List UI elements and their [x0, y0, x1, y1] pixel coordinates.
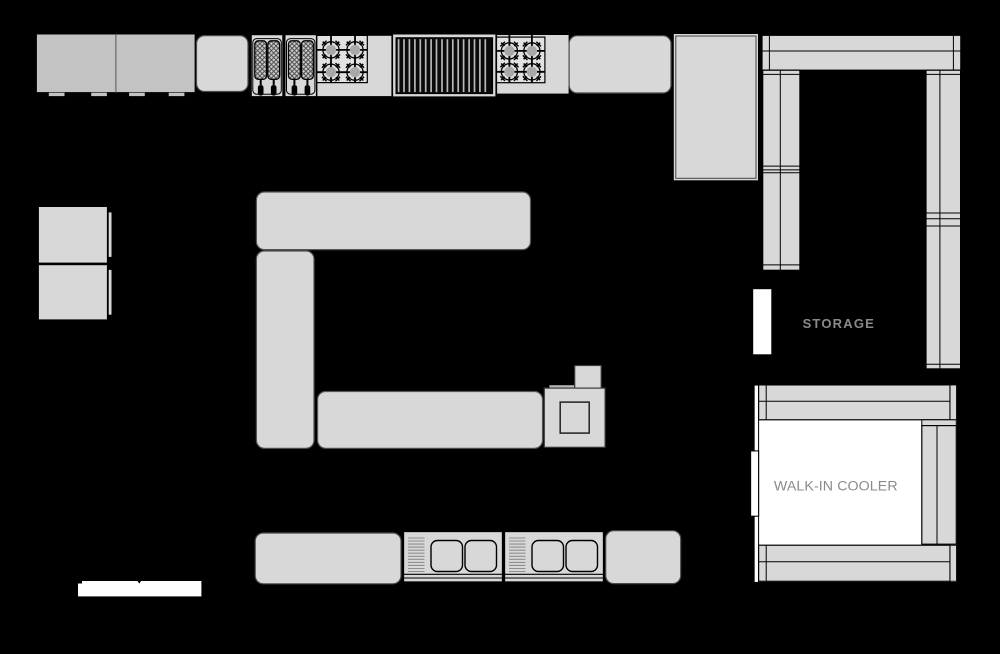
svg-text:WALK-IN COOLER: WALK-IN COOLER [774, 479, 898, 495]
svg-text:STORAGE: STORAGE [803, 316, 875, 331]
